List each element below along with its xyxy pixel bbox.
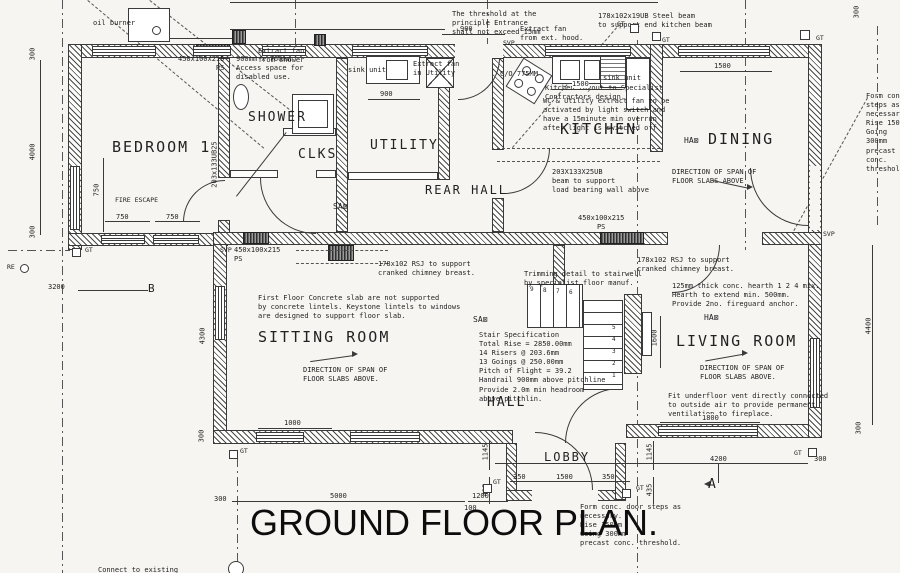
note-extract-shower: Extract fan from shower: [258, 47, 304, 65]
dim-line: [660, 316, 661, 368]
gt-marker: GT: [636, 484, 644, 492]
door-arc-dining: [750, 168, 808, 226]
heat-alarm: HA⊠: [684, 136, 698, 145]
dim-label: 900: [380, 90, 393, 98]
span-arrowhead: [742, 350, 748, 356]
window-kitchen: [545, 46, 631, 56]
dim-label: 1000: [284, 419, 301, 427]
note-lintel-top: 450x100x215 PS: [178, 55, 224, 73]
stair-number: 6: [569, 289, 573, 296]
dim-label: 435: [645, 484, 653, 497]
top-border-line: [230, 2, 658, 3]
centreline: [745, 0, 746, 250]
floor-plan-drawing: 5 4 3 2 1 9 8 7 6 BEDROOM 1 SHOWER CLKS …: [0, 0, 900, 573]
section-line-a: [718, 463, 719, 483]
gt-box: [229, 450, 238, 459]
dim-label: 4000: [28, 144, 36, 161]
wall-kitchen-left: [492, 198, 504, 232]
note-trimming: Trimming detail to stairwell by speciali…: [524, 270, 642, 288]
gt-marker: GT: [240, 447, 248, 455]
dim-label: 1145: [645, 444, 653, 461]
re-circle: [20, 264, 29, 273]
smoke-alarm: SA⊠: [333, 202, 347, 211]
dim-line: [552, 89, 622, 90]
svp-marker: SVP: [823, 230, 835, 238]
dim-label: 4400: [864, 318, 872, 335]
note-span-sitting: DIRECTION OF SPAN OF FLOOR SLABS ABOVE.: [303, 366, 387, 384]
dim-label: 1500: [714, 62, 731, 70]
room-shower: SHOWER: [248, 110, 307, 125]
note-lintel-left: 450x100x215 PS: [234, 246, 280, 264]
wall-bedroom-right: [218, 58, 230, 178]
dim-label: 350: [513, 473, 526, 481]
room-dining: DINING: [708, 130, 774, 148]
span-arrowhead: [747, 184, 753, 190]
dim-label: 5000: [330, 492, 347, 500]
dim-label: 300: [28, 226, 36, 239]
dim-label: 300: [852, 6, 860, 19]
dim-label: 300: [854, 422, 862, 435]
chimney-living: [624, 294, 642, 374]
burner-leader: [170, 38, 232, 39]
svp-marker: SVP: [220, 246, 232, 254]
gt-box: [72, 248, 81, 257]
lintel-block: [243, 232, 269, 244]
note-span-dining: DIRECTION OF SPAN OF FLOOR SLABS ABOVE: [672, 168, 756, 186]
heat-alarm: HA⊠: [704, 313, 718, 322]
note-fire-escape: FIRE ESCAPE: [115, 196, 158, 204]
room-rear-hall: REAR HALL: [425, 183, 508, 197]
gt-marker: GT: [662, 36, 670, 44]
room-lobby: LOBBY: [544, 450, 590, 464]
re-marker: RE: [7, 263, 15, 271]
stair-number: 7: [556, 288, 560, 295]
dim-label: 750: [166, 213, 179, 221]
re-line: [8, 250, 70, 251]
note-oil-burner: oil burner: [93, 19, 135, 28]
note-stair-spec: Stair Specification Total Rise = 2850.00…: [479, 331, 605, 404]
note-sink-unit-kitchen: sink unit: [603, 74, 641, 83]
room-utility: UTILITY: [370, 138, 439, 153]
dim-line: [495, 463, 808, 464]
svp-marker: SVP: [503, 39, 515, 47]
span-arrowhead: [352, 351, 358, 357]
window-dining: [678, 46, 770, 56]
note-span-living: DIRECTION OF SPAN OF FLOOR SLABS ABOVE.: [700, 364, 784, 382]
note-extract-utility: Extract fan in Utility: [413, 60, 459, 78]
dim-label: 300: [28, 48, 36, 61]
room-bedroom1: BEDROOM 1: [112, 138, 211, 156]
dim-line: [103, 158, 104, 232]
wall-clks-bottom: [316, 170, 336, 178]
chimney-dashed: [296, 250, 388, 251]
hob-burner: [525, 85, 537, 97]
window: [153, 235, 199, 244]
wall-utility-bottom: [348, 172, 438, 180]
chimney-sitting: [328, 245, 354, 261]
window-living: [658, 426, 758, 436]
note-steel-beam: 178x102x19UB Steel beam to support end k…: [598, 12, 712, 30]
gt-box: [483, 484, 492, 493]
dim-line: [660, 422, 760, 423]
dim-line: [105, 221, 150, 222]
gt-marker: GT: [493, 478, 501, 486]
note-rsj-sitting: 178x102 RSJ to support cranked chimney b…: [378, 260, 475, 278]
note-connect: Connect to existing: [98, 566, 178, 573]
dim-label: 900: [460, 25, 473, 33]
window: [101, 235, 145, 244]
stair-number: 1: [612, 372, 616, 379]
drawing-title: GROUND FLOOR PLAN.: [250, 502, 658, 544]
window: [92, 46, 156, 56]
dim-line: [680, 71, 772, 72]
section-marker-a: A: [708, 477, 716, 492]
dim-label: 3200: [48, 283, 65, 291]
dim-label: 1500: [572, 80, 589, 88]
window: [352, 46, 428, 56]
note-underfloor: Fit underfloor vent directly connected t…: [668, 392, 828, 419]
gt-box: [652, 32, 661, 41]
gt-box: [800, 30, 810, 40]
note-hearth: 125mm thick conc. hearth 1 2 4 mix. Hear…: [672, 282, 820, 309]
gt-box: [630, 24, 639, 33]
note-kitchen-layout: Kitchen layout to Specialist Contractors…: [545, 84, 663, 102]
note-slab: First Floor Concrete slab are not suppor…: [258, 294, 460, 321]
dim-label: 1145: [481, 444, 489, 461]
dim-line: [258, 428, 332, 429]
stair-number: 2: [612, 360, 616, 367]
wc-pan: [233, 84, 249, 110]
room-living: LIVING ROOM: [676, 332, 797, 350]
dim-line: [368, 99, 420, 100]
lobby-door-opening: [532, 490, 598, 501]
gt-marker: GT: [816, 34, 824, 42]
gt-marker: GT: [794, 449, 802, 457]
dim-label: 350: [602, 473, 615, 481]
dim-line: [78, 290, 148, 291]
dim-label: 750: [92, 184, 100, 197]
window-fire-escape: [70, 166, 80, 230]
section-marker-b: B: [148, 282, 155, 295]
span-arrow-line: [310, 355, 355, 362]
note-form-steps-right: Form conc. steps as necessary. Rise 150m…: [866, 92, 900, 174]
dim-label: 1500: [556, 473, 573, 481]
drain-line: [237, 458, 238, 563]
dim-label: 1800: [702, 414, 719, 422]
note-wc-extract: WC & Utility extract fan to be activated…: [543, 97, 669, 133]
room-sitting: SITTING ROOM: [258, 328, 390, 346]
centreline: [295, 0, 296, 46]
wall-bedroom-bottom: [68, 233, 228, 246]
note-co775: C/O 775MM: [500, 70, 538, 79]
lintel-block: [600, 232, 644, 244]
kitchen-sink-bowl: [584, 60, 600, 80]
dim-line: [872, 245, 873, 425]
note-rsj-living: 178x102 RSJ to support cranked chimney b…: [637, 256, 734, 274]
room-clks: CLKS: [298, 147, 337, 162]
gt-box: [808, 448, 817, 457]
utility-sink-bowl: [386, 60, 408, 80]
flue-block: [314, 34, 326, 46]
stair-number: 4: [612, 336, 616, 343]
wall-spine: [762, 232, 822, 245]
dim-label: 750: [116, 213, 129, 221]
kitchen-sink-bowl: [560, 60, 580, 80]
dim-label: 4300: [198, 328, 206, 345]
note-sink-unit-utility: sink unit: [348, 66, 386, 75]
manhole: [228, 561, 244, 573]
stair-number: 5: [612, 324, 616, 331]
dim-line: [442, 34, 505, 35]
door-arc-kitchen: [504, 148, 550, 194]
dim-label: 300: [197, 430, 205, 443]
dim-line: [510, 481, 630, 482]
dim-line: [155, 221, 200, 222]
door-arc-clks: [260, 178, 316, 234]
dim-line: [40, 60, 41, 235]
window: [350, 432, 420, 442]
dim-label: 300: [214, 495, 227, 503]
stairs-upper-flight: [527, 284, 583, 328]
dim-label: 1600: [650, 330, 658, 347]
top-border-line: [230, 29, 445, 30]
gt-box: [622, 489, 631, 498]
note-extract-hood: Extract fan from ext. hood.: [520, 25, 583, 43]
dining-door-opening: [810, 166, 820, 230]
chimney-dashed: [296, 263, 388, 264]
dim-label: 4200: [710, 455, 727, 463]
note-lintel-mid: 450x100x215 PS: [578, 214, 624, 232]
gt-marker: GT: [617, 20, 625, 28]
gt-marker: GT: [85, 246, 93, 254]
entrance-opening: [455, 44, 503, 58]
burner-flue-circle: [152, 26, 161, 35]
window: [256, 432, 304, 442]
note-beam-203: 203X133X25UB beam to support load bearin…: [552, 168, 649, 195]
note-beam-vertical: 203x133UB25: [211, 141, 220, 187]
stair-number: 3: [612, 348, 616, 355]
smoke-alarm: SA⊠: [473, 315, 487, 324]
span-arrow-line: [705, 354, 745, 362]
window: [215, 286, 225, 340]
flue-block: [232, 30, 246, 44]
